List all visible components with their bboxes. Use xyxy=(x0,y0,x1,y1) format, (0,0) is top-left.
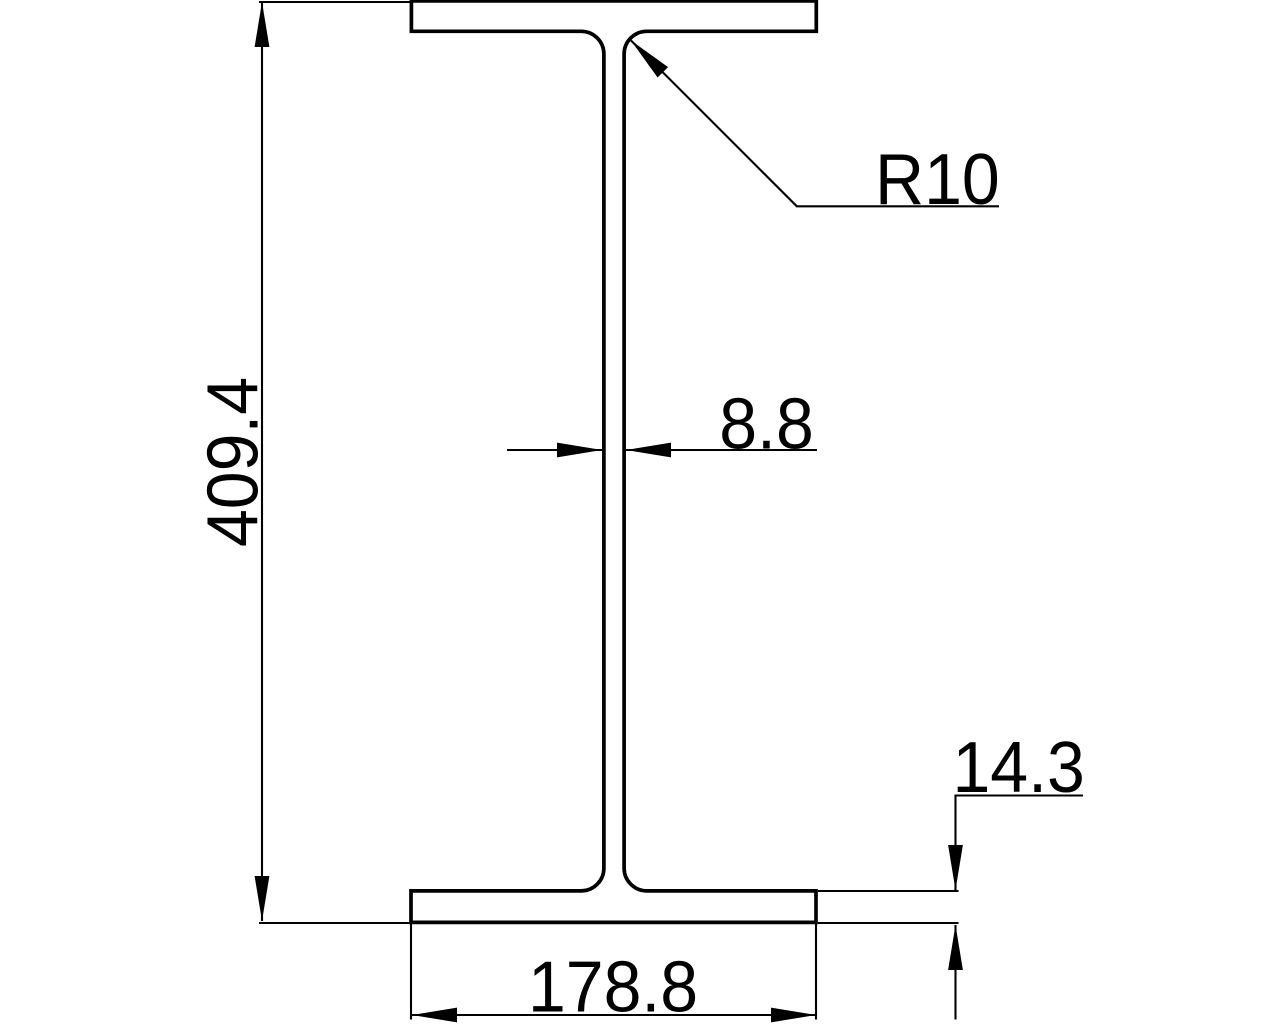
svg-text:409.4: 409.4 xyxy=(192,377,273,547)
svg-text:178.8: 178.8 xyxy=(528,946,698,1024)
svg-text:8.8: 8.8 xyxy=(719,383,814,464)
svg-text:R10: R10 xyxy=(875,138,1000,219)
svg-text:14.3: 14.3 xyxy=(953,726,1085,807)
